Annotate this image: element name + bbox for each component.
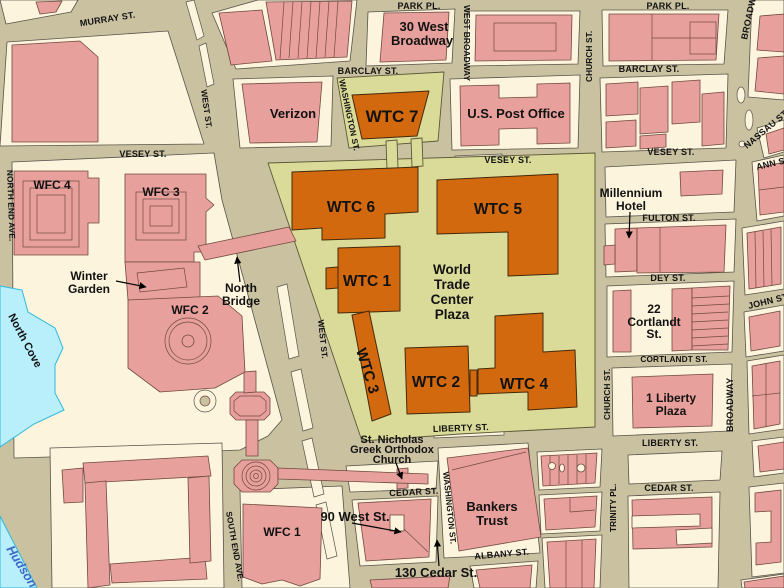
building-footprint — [637, 225, 726, 273]
street-label-barclay-w: BARCLAY ST. — [338, 66, 399, 76]
street-label-church-n: CHURCH ST. — [584, 31, 594, 82]
winter-garden-building — [125, 262, 200, 300]
label-post-office: U.S. Post Office — [467, 106, 565, 121]
label-30west-line2: Broadway — [391, 33, 454, 48]
street-label-vesey-e: VESEY ST. — [647, 147, 694, 157]
label-wfc1: WFC 1 — [263, 525, 301, 539]
building-footprint — [692, 286, 730, 350]
street-label-church-s: CHURCH ST. — [602, 369, 612, 420]
street-label-liberty-e: LIBERTY ST. — [642, 438, 698, 448]
street-label-dey: DEY ST. — [650, 273, 685, 283]
building-footprint — [702, 92, 724, 146]
label-north-bridge-line1: North — [225, 281, 257, 295]
street-label-park-pl-e: PARK PL. — [647, 1, 690, 11]
building-footprint — [604, 245, 615, 265]
pedestrian-bridge — [411, 138, 423, 167]
street-label-cortlandt: CORTLANDT ST. — [640, 354, 707, 364]
building-footprint — [606, 120, 636, 148]
street-label-liberty-w: LIBERTY ST. — [433, 422, 489, 434]
label-30west-line1: 30 West — [400, 19, 450, 34]
street-label-park-pl-w: PARK PL. — [398, 1, 441, 11]
building-footprint — [640, 86, 668, 134]
millennium-hotel-building — [615, 228, 637, 272]
street-label-trinity-pl: TRINITY PL. — [608, 484, 618, 532]
gateway-building — [62, 468, 83, 503]
building-detail-lines — [182, 335, 194, 347]
median-island — [737, 87, 745, 103]
city-block — [628, 451, 722, 484]
wtc2-wing — [470, 370, 477, 396]
gateway-building — [188, 476, 211, 563]
building-footprint — [544, 496, 597, 530]
label-1liberty-line1: 1 Liberty — [646, 391, 696, 405]
label-bankers-line2: Trust — [476, 513, 508, 528]
label-22cortlandt-line3: St. — [646, 327, 661, 341]
label-wtc2: WTC 2 — [412, 374, 460, 391]
label-wfc2: WFC 2 — [171, 303, 209, 317]
label-wtc1: WTC 1 — [343, 273, 392, 290]
label-plaza-line2: Trade — [434, 277, 471, 292]
street-label-broadway-s: BROADWAY — [725, 378, 735, 432]
label-22cortlandt-line1: 22 — [647, 302, 661, 316]
building-courtyard — [632, 514, 700, 528]
map-canvas: MURRAY ST. PARK PL. PARK PL. WEST BROADW… — [0, 0, 784, 588]
label-verizon: Verizon — [270, 106, 316, 121]
building-footprint — [547, 539, 596, 588]
building-courtyard — [577, 464, 585, 472]
gateway-building — [85, 481, 110, 588]
building-footprint — [12, 41, 98, 142]
label-wtc6: WTC 6 — [327, 199, 376, 216]
label-plaza-line1: World — [433, 262, 471, 277]
label-wtc5: WTC 5 — [474, 201, 523, 218]
label-north-bridge-line2: Bridge — [222, 294, 260, 308]
traffic-circle-center — [200, 396, 210, 406]
label-wtc7: WTC 7 — [366, 107, 419, 126]
label-winter-line2: Garden — [68, 282, 110, 296]
label-wfc3: WFC 3 — [142, 185, 180, 199]
street-label-vesey-w: VESEY ST. — [119, 149, 166, 159]
wfc1-building — [243, 504, 322, 586]
street-label-west-broadway: WEST BROADWAY — [462, 5, 472, 81]
street-label-vesey-mid: VESEY ST. — [484, 155, 531, 165]
street-label-cedar-e: CEDAR ST. — [644, 483, 693, 493]
building-footprint — [757, 14, 784, 52]
label-millennium-line1: Millennium — [600, 186, 663, 200]
building-courtyard — [390, 515, 404, 531]
building-footprint — [475, 15, 572, 61]
walkway-connector — [246, 420, 258, 456]
building-footprint — [541, 453, 597, 486]
south-bridge-hub — [234, 460, 278, 492]
label-wfc4: WFC 4 — [33, 178, 71, 192]
building-footprint — [749, 311, 780, 351]
building-footprint — [606, 82, 638, 116]
label-millennium-line2: Hotel — [616, 199, 646, 213]
label-stnicholas-line3: Church — [373, 454, 412, 466]
building-footprint — [672, 80, 700, 124]
building-courtyard — [549, 463, 556, 470]
building-footprint — [755, 56, 784, 94]
label-winter-line1: Winter — [70, 269, 108, 283]
building-courtyard — [676, 528, 712, 545]
label-90west: 90 West St. — [320, 509, 389, 524]
median-island — [745, 110, 753, 130]
wtc1-wing — [326, 267, 338, 289]
wtc-site-map: MURRAY ST. PARK PL. PARK PL. WEST BROADW… — [0, 0, 784, 588]
building-footprint — [680, 170, 723, 196]
label-plaza-line3: Center — [431, 292, 475, 307]
label-wtc4: WTC 4 — [500, 376, 549, 393]
street-label-fulton: FULTON ST. — [642, 213, 695, 223]
building-footprint — [758, 442, 784, 472]
street-label-barclay-e: BARCLAY ST. — [619, 64, 680, 74]
label-130cedar: 130 Cedar St. — [395, 565, 477, 580]
pedestrian-bridge — [386, 140, 398, 169]
label-plaza-line4: Plaza — [435, 307, 470, 322]
walkway-connector — [244, 371, 256, 393]
label-bankers-line1: Bankers — [466, 499, 517, 514]
label-1liberty-line2: Plaza — [656, 404, 687, 418]
building-courtyard — [560, 464, 565, 472]
